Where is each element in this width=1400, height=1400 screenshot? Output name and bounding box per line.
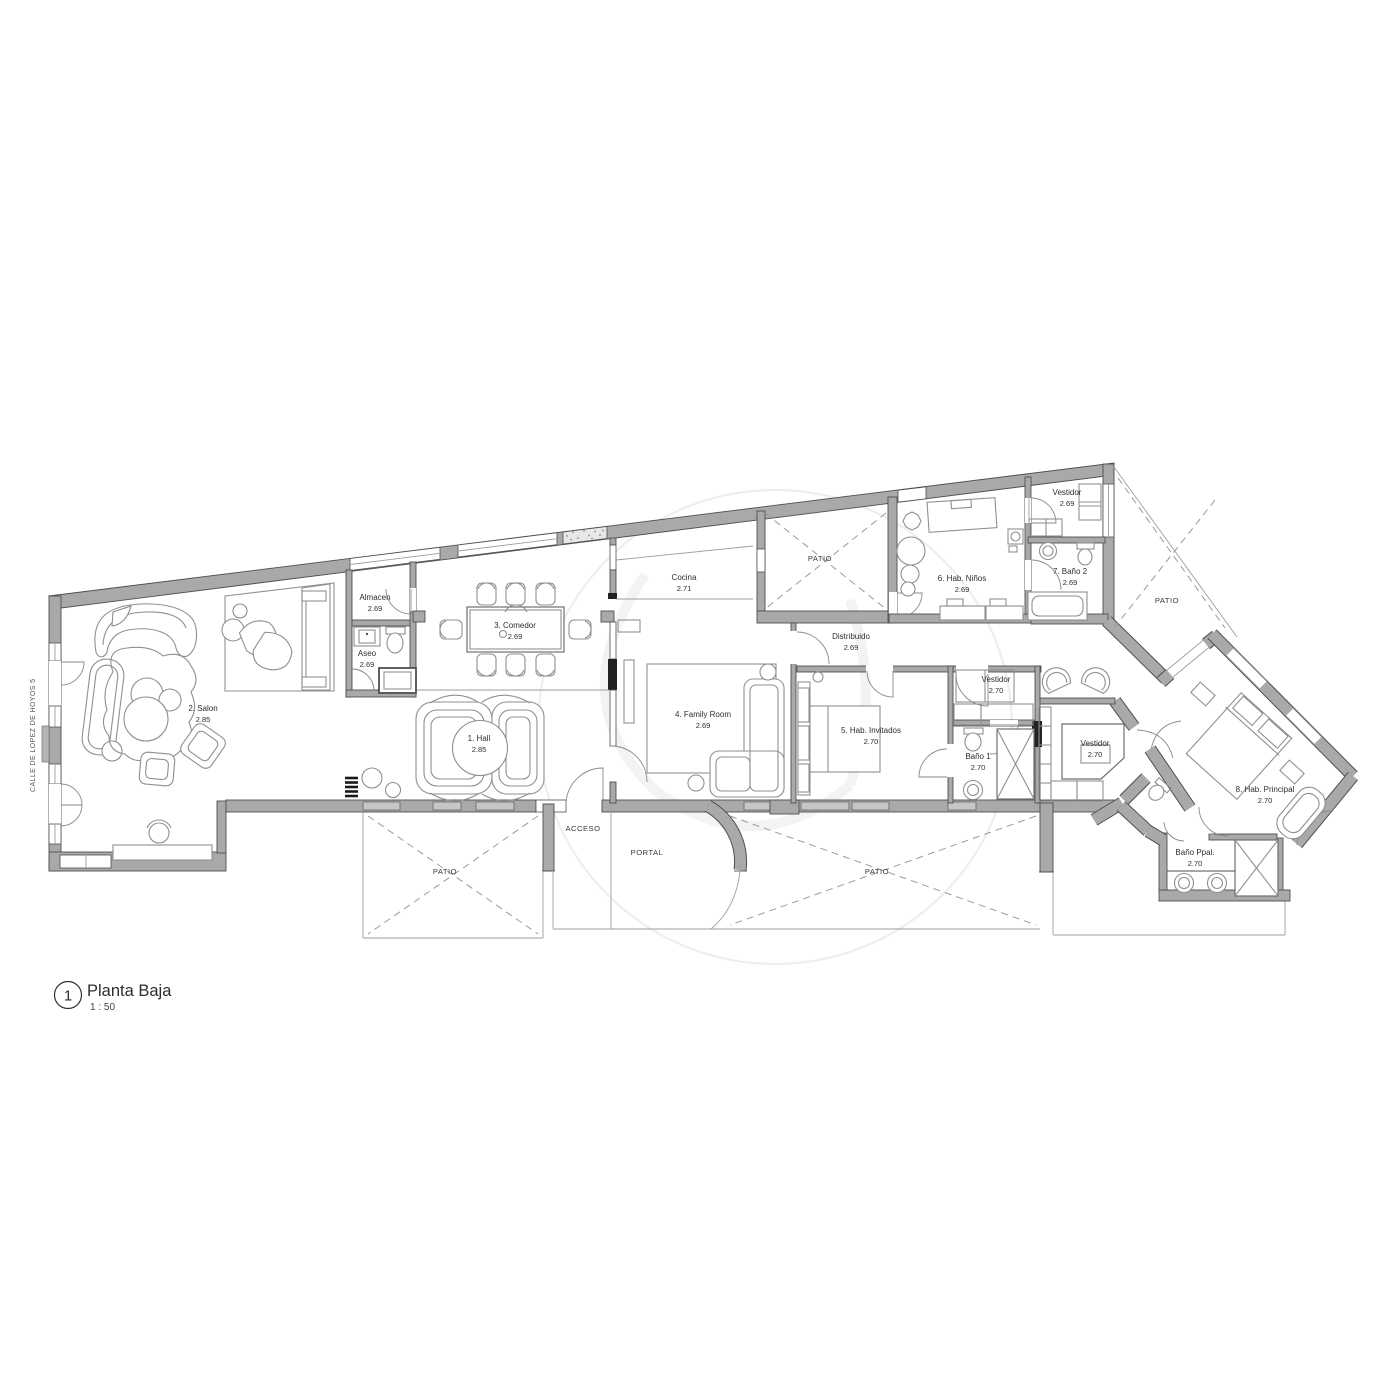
svg-text:2.69: 2.69	[1063, 578, 1078, 587]
svg-text:Vestidor: Vestidor	[1053, 488, 1082, 497]
svg-text:2.85: 2.85	[196, 715, 211, 724]
svg-text:2.69: 2.69	[1060, 499, 1075, 508]
svg-text:2.70: 2.70	[971, 763, 986, 772]
svg-text:2. Salon: 2. Salon	[188, 704, 217, 713]
svg-text:5. Hab. Invitados: 5. Hab. Invitados	[841, 726, 901, 735]
svg-text:2.69: 2.69	[955, 585, 970, 594]
svg-text:Aseo: Aseo	[358, 649, 377, 658]
svg-text:ACCESO: ACCESO	[565, 824, 600, 833]
svg-text:PATIO: PATIO	[1155, 596, 1179, 605]
svg-text:PATIO: PATIO	[865, 867, 889, 876]
svg-text:Baño Ppal.: Baño Ppal.	[1175, 848, 1214, 857]
svg-text:PORTAL: PORTAL	[631, 848, 664, 857]
svg-text:2.69: 2.69	[696, 721, 711, 730]
svg-text:2.69: 2.69	[508, 632, 523, 641]
svg-text:Cocina: Cocina	[672, 573, 697, 582]
svg-text:Vestidor: Vestidor	[982, 675, 1011, 684]
svg-text:1: 1	[64, 988, 72, 1005]
svg-text:3. Comedor: 3. Comedor	[494, 621, 536, 630]
svg-text:1. Hall: 1. Hall	[468, 734, 491, 743]
svg-text:PATIO: PATIO	[433, 867, 457, 876]
svg-text:2.70: 2.70	[1258, 796, 1273, 805]
svg-text:PATIO: PATIO	[808, 554, 832, 563]
svg-text:2.69: 2.69	[360, 660, 375, 669]
svg-text:2.69: 2.69	[368, 604, 383, 613]
svg-text:2.70: 2.70	[989, 686, 1004, 695]
svg-text:7. Baño 2: 7. Baño 2	[1053, 567, 1088, 576]
svg-text:8. Hab. Principal: 8. Hab. Principal	[1236, 785, 1295, 794]
svg-text:2.70: 2.70	[1188, 859, 1203, 868]
svg-text:4. Family Room: 4. Family Room	[675, 710, 731, 719]
svg-text:Baño 1: Baño 1	[965, 752, 991, 761]
svg-text:Almacen: Almacen	[359, 593, 390, 602]
svg-text:Distribuido: Distribuido	[832, 632, 870, 641]
svg-text:CALLE DE LOPEZ DE HOYOS 5: CALLE DE LOPEZ DE HOYOS 5	[30, 679, 37, 792]
svg-text:2.70: 2.70	[1088, 750, 1103, 759]
svg-text:6. Hab. Niños: 6. Hab. Niños	[938, 574, 986, 583]
svg-text:Planta Baja: Planta Baja	[87, 982, 172, 1000]
svg-text:2.71: 2.71	[677, 584, 692, 593]
svg-text:Vestidor: Vestidor	[1081, 739, 1110, 748]
svg-text:2.85: 2.85	[472, 745, 487, 754]
svg-text:1 : 50: 1 : 50	[90, 1002, 115, 1013]
svg-text:2.69: 2.69	[844, 643, 859, 652]
svg-text:2.70: 2.70	[864, 737, 879, 746]
